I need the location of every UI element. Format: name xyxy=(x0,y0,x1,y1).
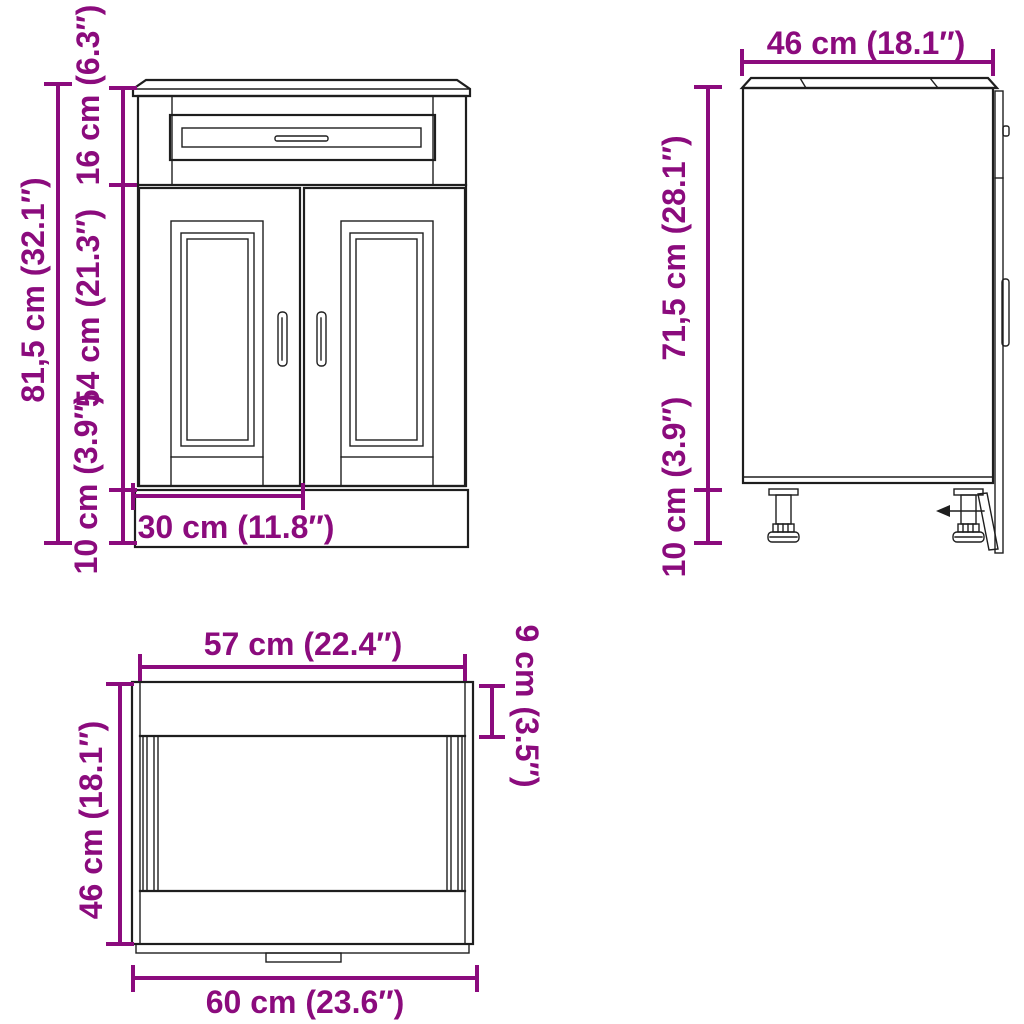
left-door-panel-inner xyxy=(187,239,248,440)
dim-label-total-width: 60 cm (23.6″) xyxy=(206,984,405,1020)
dim-label-back-rail-depth: 9 cm (3.5″) xyxy=(509,625,545,788)
top-outline xyxy=(132,682,473,944)
side-view-dimensions: 46 cm (18.1″) 71,5 cm (28.1″) 10 cm (3.9… xyxy=(656,25,993,577)
front-view-drawing xyxy=(133,80,470,547)
side-countertop-bevel2 xyxy=(800,78,806,88)
dim-label-drawer-height: 16 cm (6.3″) xyxy=(70,5,106,186)
side-view: 46 cm (18.1″) 71,5 cm (28.1″) 10 cm (3.9… xyxy=(656,25,1009,577)
top-view: 57 cm (22.4″) 9 cm (3.5″) 46 cm (18.1″) … xyxy=(73,625,545,1020)
drawer-handle xyxy=(275,136,328,141)
right-door-panel xyxy=(350,233,423,446)
left-door-panel xyxy=(181,233,254,446)
dim-label-depth: 46 cm (18.1″) xyxy=(767,25,966,61)
dim-label-side-base-height: 10 cm (3.9″) xyxy=(656,397,692,578)
adjustable-foot-right xyxy=(953,489,984,542)
top-view-drawing xyxy=(132,682,473,962)
side-panel-body xyxy=(743,88,993,483)
cabinet-dimension-diagram: 81,5 cm (32.1″) 16 cm (6.3″) 54 cm (21.3… xyxy=(0,0,1024,1024)
left-side-panel-boards xyxy=(143,737,158,891)
drawer-front-panel xyxy=(182,128,421,147)
dim-label-inner-width: 57 cm (22.4″) xyxy=(204,626,403,662)
adjustment-arrow xyxy=(936,505,984,517)
side-view-drawing xyxy=(742,78,1009,553)
top-view-dimensions: 57 cm (22.4″) 9 cm (3.5″) 46 cm (18.1″) … xyxy=(73,625,545,1020)
drawer-handle-side xyxy=(1003,126,1009,136)
right-door-frame xyxy=(341,221,433,457)
dim-label-door-width: 30 cm (11.8″) xyxy=(138,509,335,545)
dim-label-body-height: 71,5 cm (28.1″) xyxy=(656,135,692,360)
dimension-drawing-svg: 81,5 cm (32.1″) 16 cm (6.3″) 54 cm (21.3… xyxy=(0,0,1024,1024)
front-view: 81,5 cm (32.1″) 16 cm (6.3″) 54 cm (21.3… xyxy=(15,5,470,575)
right-door-panel-inner xyxy=(356,239,417,440)
dim-label-door-height: 54 cm (21.3″) xyxy=(70,209,106,408)
dim-label-top-depth: 46 cm (18.1″) xyxy=(73,721,109,920)
dim-label-base-height: 10 cm (3.9″) xyxy=(68,394,104,575)
countertop xyxy=(133,80,470,96)
drawer-front xyxy=(170,115,435,160)
left-door-frame xyxy=(171,221,263,457)
front-edge-lip xyxy=(136,944,469,953)
dim-label-total-height: 81,5 cm (32.1″) xyxy=(15,177,51,402)
side-countertop-bevel xyxy=(930,78,938,88)
side-countertop xyxy=(742,78,997,88)
mounting-tab xyxy=(266,953,341,962)
adjustable-foot-left xyxy=(768,489,799,542)
right-side-panel-boards xyxy=(447,737,462,891)
